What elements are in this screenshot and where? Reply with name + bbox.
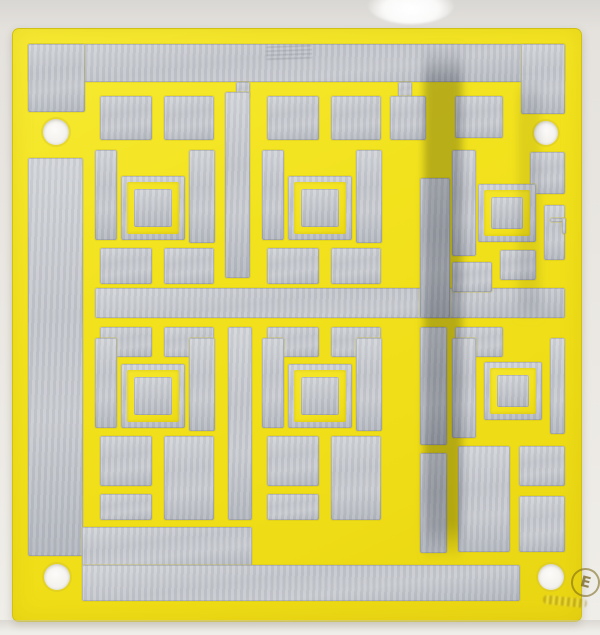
photo-scene: E: [0, 0, 600, 635]
etched-text-mark: [266, 45, 312, 60]
table-surface-sheen: [0, 620, 600, 635]
certification-letter: E: [578, 572, 592, 592]
streak-layer: [0, 0, 600, 635]
oxidation-streak: [518, 80, 540, 320]
oxidation-streak: [424, 44, 462, 560]
